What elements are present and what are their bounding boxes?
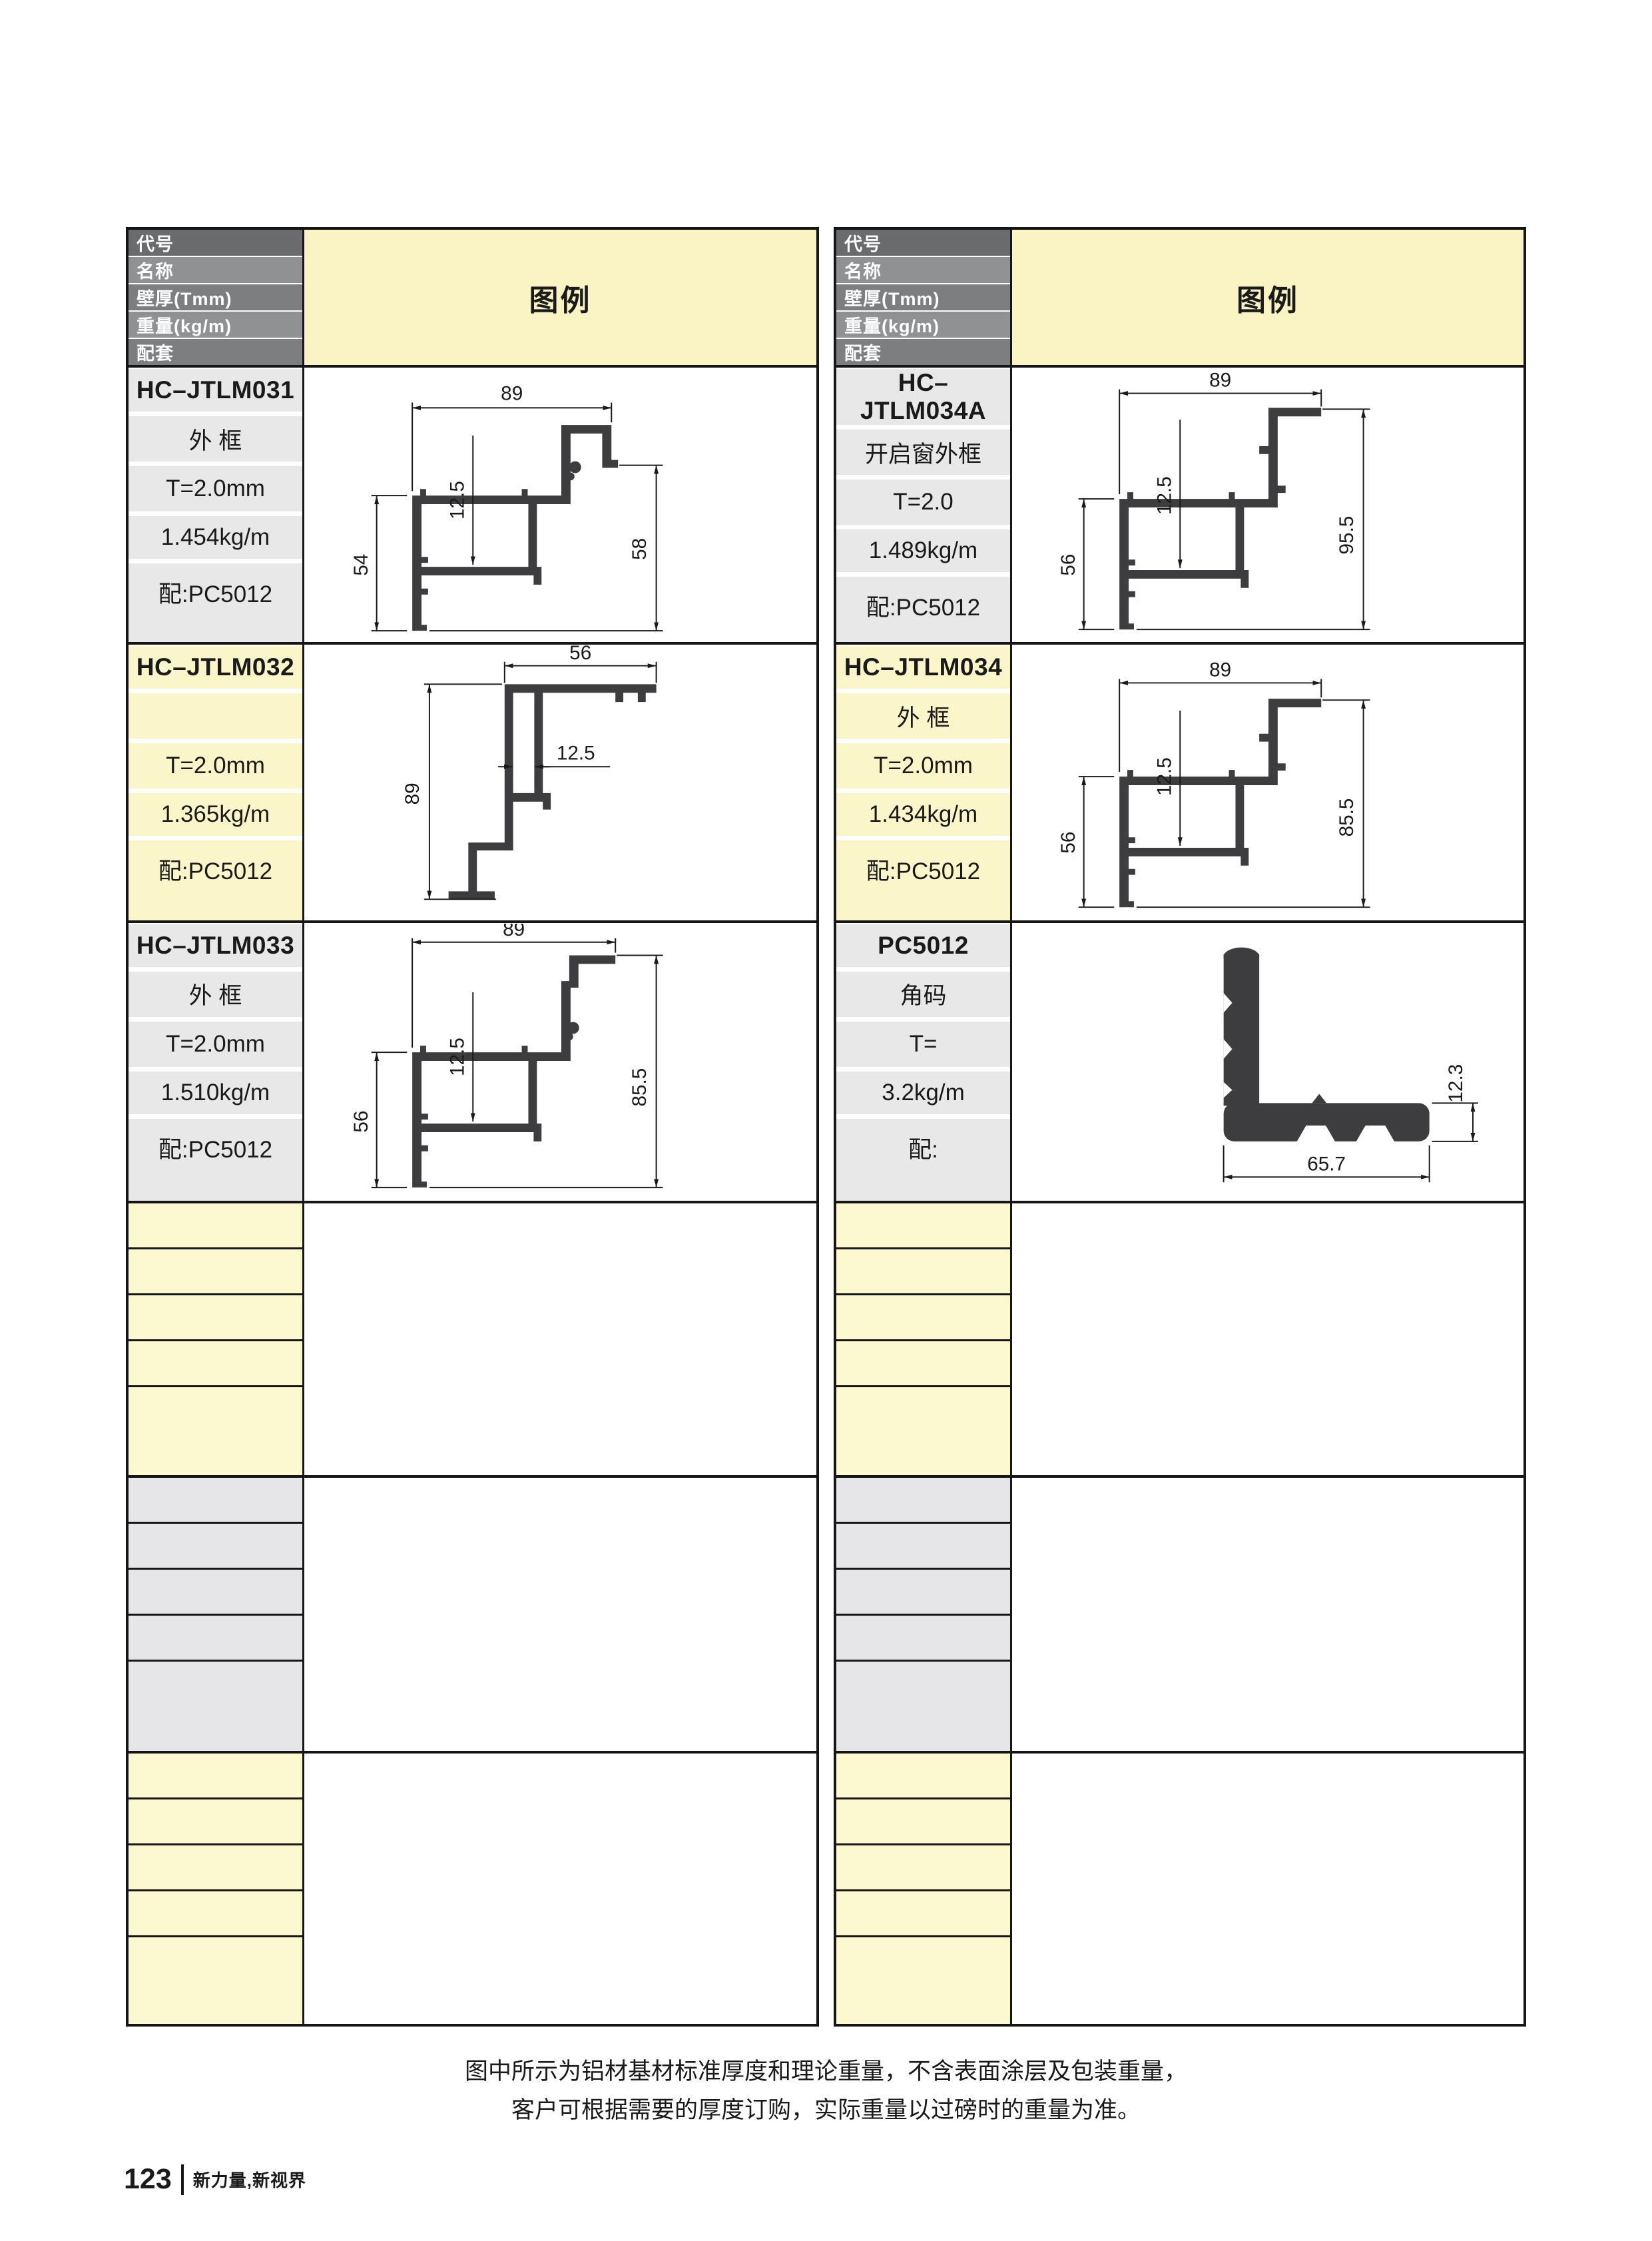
empty-cell bbox=[129, 1387, 302, 1475]
product-code: HC–JTLM034A bbox=[836, 369, 1010, 425]
footer-note-line1: 图中所示为铝材基材标准厚度和理论重量，不含表面涂层及包装重量， bbox=[0, 2053, 1652, 2091]
dim-left-label: 54 bbox=[350, 554, 372, 576]
empty-group bbox=[836, 1475, 1523, 1750]
spec-table-left: 代号 名称 壁厚(Tmm) 重量(kg/m) 配套 图例 HC–JTLM031 … bbox=[126, 227, 819, 2027]
header-label-column: 代号 名称 壁厚(Tmm) 重量(kg/m) 配套 bbox=[836, 230, 1012, 365]
empty-cell bbox=[129, 1937, 302, 2024]
product-code: PC5012 bbox=[836, 924, 1010, 967]
product-weight: 1.365kg/m bbox=[129, 793, 302, 836]
empty-cell bbox=[129, 1845, 302, 1891]
dim-top-label: 89 bbox=[501, 383, 523, 405]
product-weight: 1.454kg/m bbox=[129, 516, 302, 559]
dim-inner-label: 12.5 bbox=[446, 481, 468, 519]
product-thickness: T=2.0mm bbox=[129, 466, 302, 511]
empty-cell bbox=[836, 1249, 1010, 1295]
dim-left-label: 56 bbox=[1057, 554, 1079, 576]
header-cell-match: 配套 bbox=[129, 339, 302, 365]
profile-outline bbox=[412, 956, 615, 1188]
empty-cell bbox=[836, 1478, 1010, 1524]
dim-inner-label: 12.5 bbox=[446, 1038, 468, 1076]
empty-diagram bbox=[304, 1754, 816, 2024]
dim-right-label: 95.5 bbox=[1336, 516, 1358, 555]
product-labels: HC–JTLM033 外 框 T=2.0mm 1.510kg/m 配:PC501… bbox=[129, 923, 304, 1201]
dim-top-label: 89 bbox=[503, 924, 525, 940]
profile-drawing: 65.7 12.3 bbox=[1013, 924, 1523, 1199]
dim-right-label: 12.3 bbox=[1445, 1064, 1467, 1103]
empty-labels bbox=[129, 1478, 304, 1750]
empty-cell bbox=[836, 1387, 1010, 1475]
empty-cell bbox=[129, 1891, 302, 1937]
dim-inner-label: 12.5 bbox=[1153, 476, 1175, 515]
product-name: 外 框 bbox=[836, 693, 1010, 739]
empty-diagram bbox=[1012, 1478, 1523, 1750]
product-group-hc-jtlm033: HC–JTLM033 外 框 T=2.0mm 1.510kg/m 配:PC501… bbox=[129, 920, 816, 1201]
product-group-hc-jtlm031: HC–JTLM031 外 框 T=2.0mm 1.454kg/m 配:PC501… bbox=[129, 365, 816, 642]
empty-cell bbox=[129, 1570, 302, 1616]
header-cell-code: 代号 bbox=[129, 230, 302, 256]
empty-cell bbox=[836, 1662, 1010, 1750]
header-cell-code: 代号 bbox=[836, 230, 1010, 256]
dim-left-label: 56 bbox=[1057, 832, 1079, 854]
footer-note-line2: 客户可根据需要的厚度订购，实际重量以过磅时的重量为准。 bbox=[0, 2091, 1652, 2130]
dim-left-label: 56 bbox=[350, 1111, 372, 1133]
product-group-hc-jtlm032: HC–JTLM032 T=2.0mm 1.365kg/m 配:PC5012 56… bbox=[129, 642, 816, 920]
empty-cell bbox=[129, 1478, 302, 1524]
product-name: 外 框 bbox=[129, 416, 302, 462]
brand-slogan: 新力量,新视界 bbox=[193, 2167, 306, 2192]
profile-drawing: 89 12.5 56 85.5 bbox=[306, 924, 816, 1199]
dim-top-label: 89 bbox=[1209, 370, 1231, 392]
profile-bump bbox=[1312, 1094, 1326, 1104]
product-code: HC–JTLM033 bbox=[129, 924, 302, 967]
header-cell-name: 名称 bbox=[836, 257, 1010, 283]
product-thickness: T=2.0mm bbox=[129, 1022, 302, 1067]
empty-diagram bbox=[304, 1203, 816, 1475]
dim-left-label: 89 bbox=[402, 783, 423, 804]
header-cell-name: 名称 bbox=[129, 257, 302, 283]
product-thickness: T=2.0mm bbox=[836, 743, 1010, 789]
product-name: 外 框 bbox=[129, 972, 302, 1017]
dim-inner-label: 12.5 bbox=[1153, 757, 1175, 796]
dim-top-label: 56 bbox=[569, 645, 591, 664]
empty-cell bbox=[836, 1754, 1010, 1799]
profile-outline bbox=[448, 684, 656, 899]
empty-cell bbox=[836, 1799, 1010, 1845]
footer-divider bbox=[181, 2164, 184, 2195]
footer-note: 图中所示为铝材基材标准厚度和理论重量，不含表面涂层及包装重量， 客户可根据需要的… bbox=[0, 2053, 1652, 2130]
legend-header: 图例 bbox=[304, 230, 816, 365]
empty-cell bbox=[129, 1341, 302, 1387]
product-match: 配:PC5012 bbox=[129, 563, 302, 642]
header-cell-weight: 重量(kg/m) bbox=[836, 312, 1010, 338]
product-code: HC–JTLM031 bbox=[129, 369, 302, 412]
header-cell-weight: 重量(kg/m) bbox=[129, 312, 302, 338]
profile-drawing: 89 12.5 54 58 bbox=[306, 367, 816, 642]
empty-labels bbox=[836, 1478, 1012, 1750]
product-weight: 1.434kg/m bbox=[836, 793, 1010, 836]
header-cell-thickness: 壁厚(Tmm) bbox=[836, 284, 1010, 310]
empty-cell bbox=[129, 1662, 302, 1750]
empty-cell bbox=[836, 1891, 1010, 1937]
dim-right-label: 85.5 bbox=[1336, 799, 1358, 837]
product-name: 开启窗外框 bbox=[836, 430, 1010, 475]
empty-diagram bbox=[1012, 1203, 1523, 1475]
empty-cell bbox=[129, 1249, 302, 1295]
empty-cell bbox=[836, 1524, 1010, 1570]
empty-labels bbox=[836, 1754, 1012, 2024]
empty-labels bbox=[129, 1203, 304, 1475]
profile-outline bbox=[1119, 699, 1321, 907]
empty-cell bbox=[836, 1203, 1010, 1249]
product-labels: HC–JTLM032 T=2.0mm 1.365kg/m 配:PC5012 bbox=[129, 645, 304, 920]
empty-labels bbox=[836, 1203, 1012, 1475]
header-label-column: 代号 名称 壁厚(Tmm) 重量(kg/m) 配套 bbox=[129, 230, 304, 365]
product-weight: 1.510kg/m bbox=[129, 1072, 302, 1114]
page-footer: 123 新力量,新视界 bbox=[124, 2163, 306, 2196]
empty-cell bbox=[129, 1799, 302, 1845]
product-match: 配:PC5012 bbox=[129, 1119, 302, 1201]
empty-cell bbox=[129, 1616, 302, 1662]
product-code: HC–JTLM034 bbox=[836, 646, 1010, 689]
empty-group bbox=[129, 1475, 816, 1750]
product-name: 角码 bbox=[836, 972, 1010, 1017]
product-labels: HC–JTLM034 外 框 T=2.0mm 1.434kg/m 配:PC501… bbox=[836, 645, 1012, 920]
product-group-hc-jtlm034: HC–JTLM034 外 框 T=2.0mm 1.434kg/m 配:PC501… bbox=[836, 642, 1523, 920]
empty-group bbox=[836, 1751, 1523, 2024]
empty-group bbox=[129, 1751, 816, 2024]
product-labels: PC5012 角码 T= 3.2kg/m 配: bbox=[836, 923, 1012, 1201]
product-group-pc5012: PC5012 角码 T= 3.2kg/m 配: 65.7 bbox=[836, 920, 1523, 1201]
profile-diagram-hc-jtlm031: 89 12.5 54 58 bbox=[304, 368, 816, 642]
product-weight: 3.2kg/m bbox=[836, 1072, 1010, 1114]
empty-cell bbox=[836, 1295, 1010, 1341]
profile-diagram-hc-jtlm032: 56 89 12.5 bbox=[304, 645, 816, 920]
product-match: 配:PC5012 bbox=[836, 840, 1010, 920]
dim-inner-label: 12.5 bbox=[556, 742, 595, 764]
legend-header: 图例 bbox=[1012, 230, 1523, 365]
page-number: 123 bbox=[124, 2163, 172, 2196]
empty-group bbox=[836, 1201, 1523, 1475]
product-match: 配:PC5012 bbox=[836, 577, 1010, 642]
table-header: 代号 名称 壁厚(Tmm) 重量(kg/m) 配套 图例 bbox=[129, 230, 816, 365]
product-thickness: T=2.0 bbox=[836, 480, 1010, 525]
empty-cell bbox=[129, 1295, 302, 1341]
header-cell-thickness: 壁厚(Tmm) bbox=[129, 284, 302, 310]
product-thickness: T= bbox=[836, 1022, 1010, 1067]
profile-diagram-hc-jtlm034: 89 12.5 56 85.5 bbox=[1012, 645, 1523, 920]
profile-diagram-hc-jtlm034a: 89 12.5 56 95.5 bbox=[1012, 368, 1523, 642]
dim-right-label: 85.5 bbox=[628, 1068, 650, 1107]
empty-diagram bbox=[1012, 1754, 1523, 2024]
product-name bbox=[129, 693, 302, 739]
spec-table-right: 代号 名称 壁厚(Tmm) 重量(kg/m) 配套 图例 HC–JTLM034A… bbox=[834, 227, 1526, 2027]
product-thickness: T=2.0mm bbox=[129, 743, 302, 789]
dim-bottom-label: 65.7 bbox=[1307, 1153, 1346, 1175]
product-match: 配: bbox=[836, 1119, 1010, 1201]
profile-outline bbox=[1119, 408, 1321, 630]
dim-top-label: 89 bbox=[1209, 659, 1231, 681]
empty-group bbox=[129, 1201, 816, 1475]
profile-diagram-hc-jtlm033: 89 12.5 56 85.5 bbox=[304, 923, 816, 1201]
empty-cell bbox=[836, 1341, 1010, 1387]
table-header: 代号 名称 壁厚(Tmm) 重量(kg/m) 配套 图例 bbox=[836, 230, 1523, 365]
product-match: 配:PC5012 bbox=[129, 840, 302, 920]
profile-drawing: 89 12.5 56 85.5 bbox=[1013, 645, 1523, 920]
empty-cell bbox=[836, 1937, 1010, 2024]
empty-cell bbox=[129, 1524, 302, 1570]
profile-diagram-pc5012: 65.7 12.3 bbox=[1012, 923, 1523, 1201]
product-labels: HC–JTLM034A 开启窗外框 T=2.0 1.489kg/m 配:PC50… bbox=[836, 368, 1012, 642]
product-weight: 1.489kg/m bbox=[836, 529, 1010, 572]
empty-diagram bbox=[304, 1478, 816, 1750]
dim-right-label: 58 bbox=[628, 538, 650, 560]
empty-cell bbox=[836, 1616, 1010, 1662]
empty-cell bbox=[129, 1203, 302, 1249]
product-code: HC–JTLM032 bbox=[129, 646, 302, 689]
profile-drawing: 56 89 12.5 bbox=[306, 645, 816, 920]
profile-outline bbox=[412, 425, 618, 631]
header-cell-match: 配套 bbox=[836, 339, 1010, 365]
product-labels: HC–JTLM031 外 框 T=2.0mm 1.454kg/m 配:PC501… bbox=[129, 368, 304, 642]
empty-labels bbox=[129, 1754, 304, 2024]
product-group-hc-jtlm034a: HC–JTLM034A 开启窗外框 T=2.0 1.489kg/m 配:PC50… bbox=[836, 365, 1523, 642]
empty-cell bbox=[836, 1845, 1010, 1891]
empty-cell bbox=[129, 1754, 302, 1799]
empty-cell bbox=[836, 1570, 1010, 1616]
profile-drawing: 89 12.5 56 95.5 bbox=[1013, 367, 1523, 642]
